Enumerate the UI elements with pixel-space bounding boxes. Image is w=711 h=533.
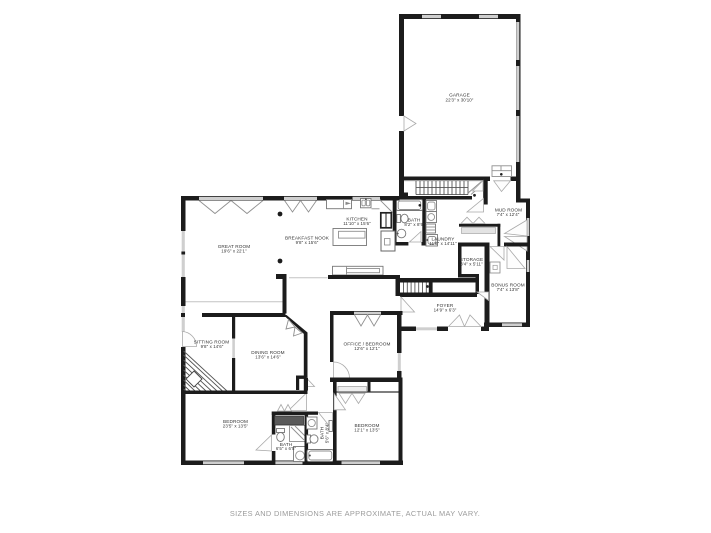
svg-text:23'5" x 13'5": 23'5" x 13'5" [223, 424, 249, 429]
svg-text:11'10" x 15'6": 11'10" x 15'6" [343, 221, 371, 226]
svg-text:13'6" x 14'6": 13'6" x 14'6" [255, 355, 281, 360]
svg-text:SIZES AND DIMENSIONS ARE APPRO: SIZES AND DIMENSIONS ARE APPROXIMATE, AC… [230, 509, 480, 518]
svg-text:5'6" x 8'4": 5'6" x 8'4" [325, 423, 330, 444]
svg-text:11'8" x 14'11": 11'8" x 14'11" [429, 241, 457, 246]
svg-text:7'4" x 12'4": 7'4" x 12'4" [497, 212, 520, 217]
svg-text:9'8" x 15'6": 9'8" x 15'6" [296, 240, 319, 245]
svg-text:14'9" x 6'3": 14'9" x 6'3" [434, 308, 457, 313]
svg-text:9'8" x 14'6": 9'8" x 14'6" [201, 344, 224, 349]
svg-text:12'1" x 13'5": 12'1" x 13'5" [354, 428, 380, 433]
svg-text:12'6" x 12'1": 12'6" x 12'1" [354, 346, 380, 351]
svg-text:7'4" x 13'8": 7'4" x 13'8" [497, 287, 520, 292]
svg-text:3'4" x 5'11": 3'4" x 5'11" [460, 262, 483, 267]
svg-text:6'5" x 6'5": 6'5" x 6'5" [276, 446, 297, 451]
svg-text:19'6" x 22'1": 19'6" x 22'1" [221, 249, 247, 254]
svg-text:22'3" x 30'10": 22'3" x 30'10" [446, 98, 474, 103]
svg-text:8'2" x 8'9": 8'2" x 8'9" [404, 222, 425, 227]
